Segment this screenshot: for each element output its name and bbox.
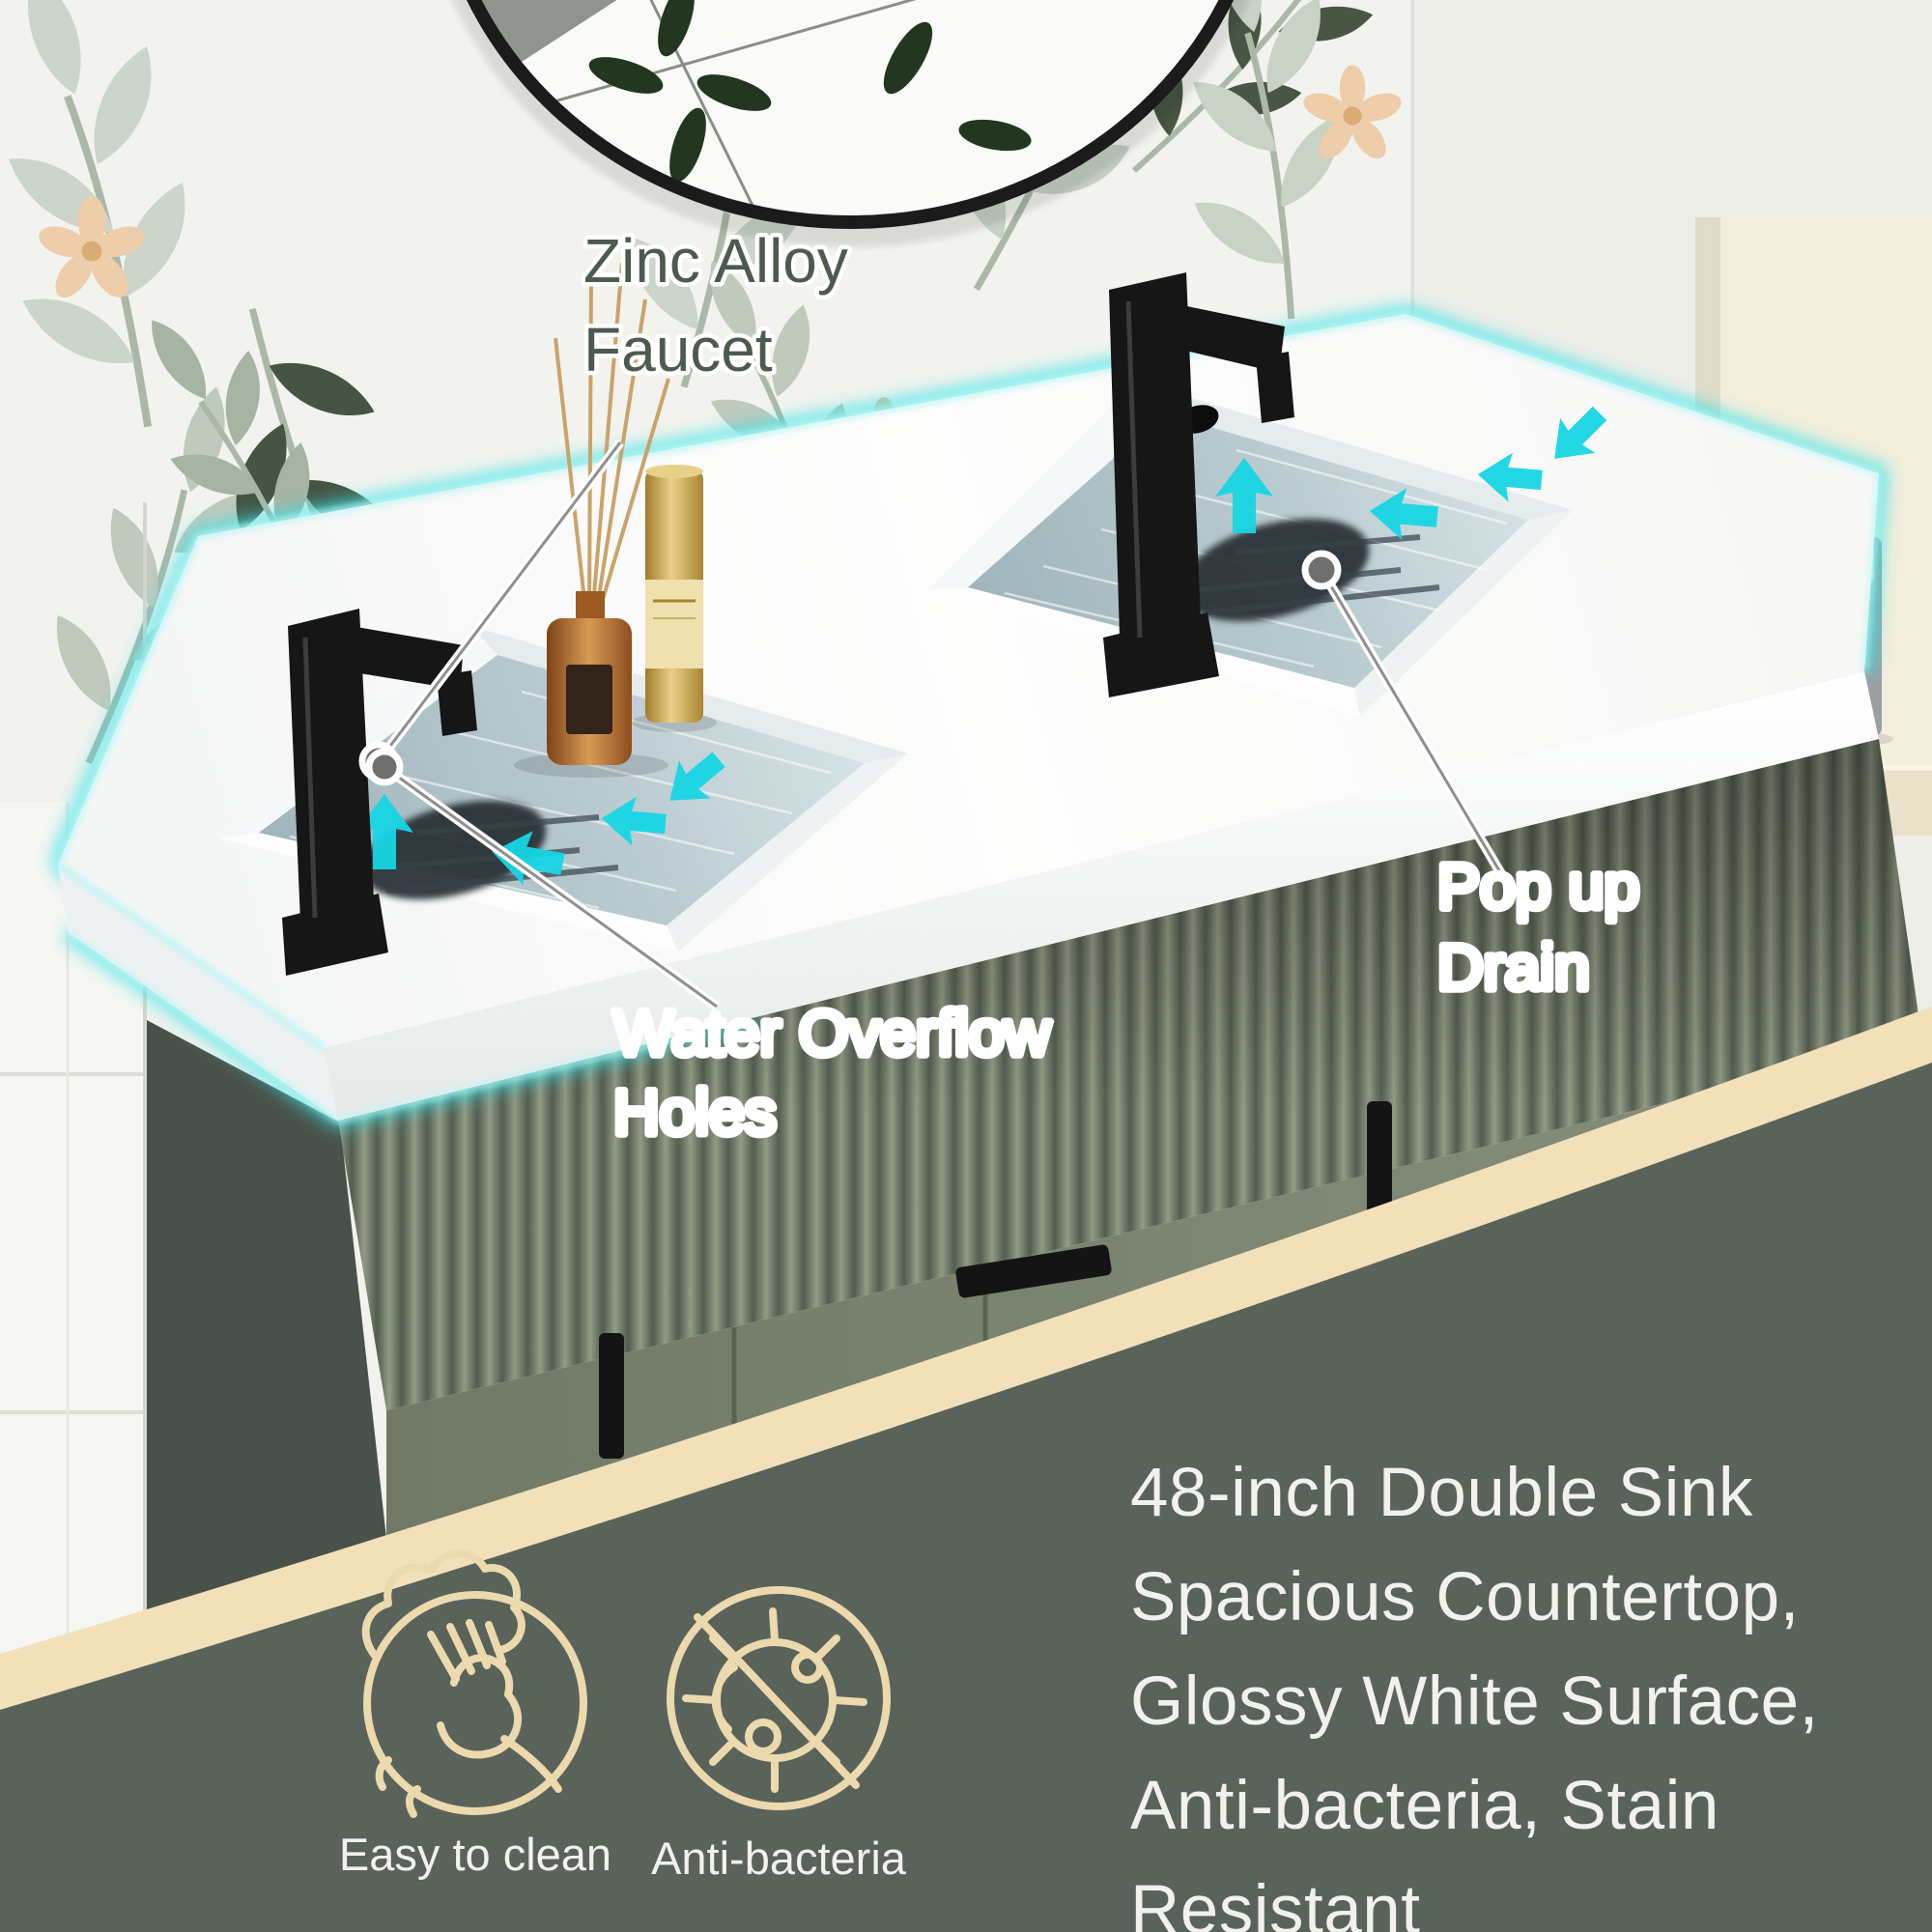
right-faucet-spout-tip bbox=[1256, 352, 1294, 423]
feature-line: Anti-bacteria, Stain bbox=[1130, 1754, 1903, 1859]
door-handle-vertical-left bbox=[599, 1333, 624, 1459]
drain-callout-dot bbox=[1305, 554, 1338, 586]
callout-faucet-line2: Faucet bbox=[583, 315, 773, 384]
callout-overflow-line1: Water Overflow bbox=[613, 997, 1051, 1068]
product-infographic: meraki bbox=[0, 0, 1932, 1932]
overflow-callout-dot bbox=[369, 752, 400, 782]
diffuser-label bbox=[566, 665, 612, 734]
feature-line: 48-inch Double Sink bbox=[1130, 1441, 1903, 1546]
gold-bottle-label bbox=[645, 580, 703, 668]
callout-drain-line2: Drain bbox=[1437, 931, 1590, 1003]
callout-faucet-line1: Zinc Alloy bbox=[583, 226, 848, 296]
callout-drain-line1: Pop up bbox=[1437, 850, 1639, 922]
feature-description: 48-inch Double Sink Spacious Countertop,… bbox=[1130, 1441, 1903, 1932]
anti-bacteria-caption: Anti-bacteria bbox=[624, 1832, 933, 1885]
callout-overflow-line2: Holes bbox=[613, 1076, 777, 1148]
feature-line: Resistant bbox=[1130, 1859, 1903, 1932]
feature-line: Glossy White Surface, bbox=[1130, 1650, 1903, 1754]
easy-to-clean-caption: Easy to clean bbox=[330, 1828, 620, 1881]
door-handle-vertical-right bbox=[1367, 1101, 1392, 1217]
feature-line: Spacious Countertop, bbox=[1130, 1546, 1903, 1650]
